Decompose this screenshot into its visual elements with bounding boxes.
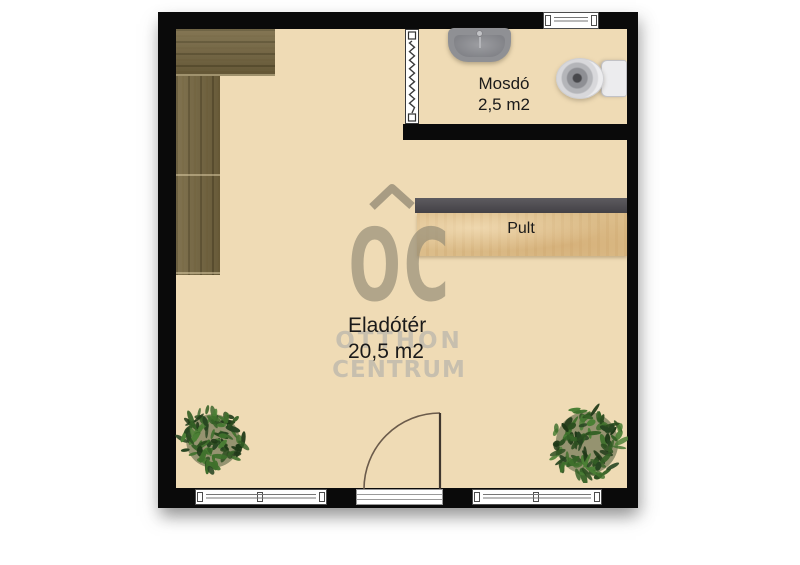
cabinet-side-icon — [176, 76, 220, 275]
accordion-door-icon — [405, 29, 419, 124]
window-frame-cap — [591, 15, 597, 26]
window-frame-cap — [197, 492, 203, 502]
sales-area-label: Eladótér 20,5 m2 — [348, 313, 426, 365]
storefront-window-right-icon — [472, 489, 602, 505]
room-area: 2,5 m2 — [444, 94, 564, 115]
window-frame-cap — [319, 492, 325, 502]
window-frame-cap — [474, 492, 480, 502]
room-name: Eladótér — [348, 313, 426, 339]
washroom-window-icon — [543, 12, 599, 29]
window-glazing — [206, 494, 316, 500]
storefront-window-left-icon — [195, 489, 327, 505]
washroom-partition-wall — [403, 124, 627, 140]
counter-top-bar-icon — [415, 198, 627, 213]
washroom-label: Mosdó 2,5 m2 — [444, 73, 564, 115]
room-area: 20,5 m2 — [348, 339, 426, 365]
cabinet-seam — [176, 272, 220, 274]
entrance-door-swing-icon — [358, 409, 444, 493]
threshold-lines — [357, 494, 442, 501]
sink-faucet — [476, 30, 483, 37]
window-glazing — [483, 494, 591, 500]
cabinet-seam — [176, 174, 220, 176]
sink-icon — [448, 28, 511, 62]
window-frame-cap — [545, 15, 551, 26]
window-frame-cap — [594, 492, 600, 502]
toilet-tank-icon — [601, 60, 627, 97]
counter-label: Pult — [471, 220, 571, 238]
room-name: Mosdó — [444, 73, 564, 94]
plant-icon — [175, 402, 251, 478]
sink-faucet-stem — [479, 37, 481, 48]
plant-icon — [546, 401, 628, 483]
cabinet-top-icon — [176, 29, 275, 76]
floorplan-canvas: OC OTTHON CENTRUM Eladótér 20,5 m2 Mosdó… — [0, 0, 800, 565]
window-glazing — [554, 17, 588, 24]
